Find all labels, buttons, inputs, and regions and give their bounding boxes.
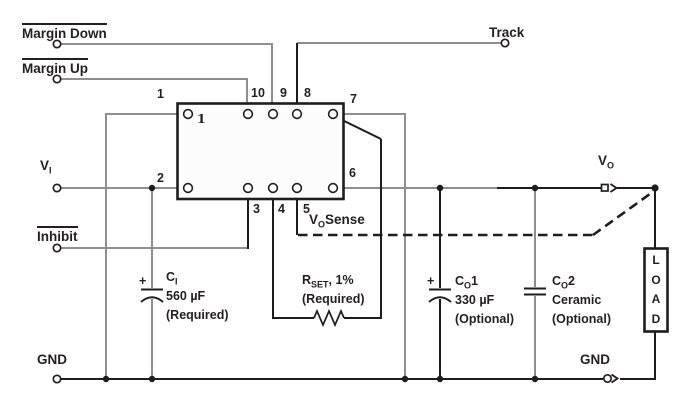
pin2-label: 2 [157, 172, 164, 185]
pin1-circle [184, 110, 193, 119]
pin9-circle [269, 110, 278, 119]
margin-down-label: Margin Down [22, 23, 107, 42]
track-label: Track [489, 25, 524, 41]
gnd-right-terminal [604, 375, 618, 383]
inhibit-label: Inhibit [37, 226, 78, 245]
pin7-label: 7 [350, 93, 357, 106]
pin5-circle [293, 184, 302, 193]
pin8-circle [293, 110, 302, 119]
vo-label: VO [598, 153, 614, 169]
inhibit-wire [61, 199, 248, 249]
pin7-circle [329, 110, 338, 119]
co2-annotation: CO2 Ceramic (Optional) [552, 272, 611, 329]
vi-label: VI [40, 158, 52, 174]
pin3-label: 3 [253, 203, 260, 216]
pin6-label: 6 [349, 167, 356, 180]
pin1-ground-wire [106, 113, 184, 379]
vo-terminal [602, 184, 617, 192]
pin8-label: 8 [304, 87, 311, 100]
pin4-circle [269, 184, 278, 193]
vo-sense-label: VOSense [309, 212, 365, 228]
gnd-left-label: GND [37, 352, 67, 368]
pin10-circle [244, 110, 253, 119]
gnd-right-label: GND [580, 352, 610, 368]
rset-resistor-symbol [314, 311, 344, 325]
margin-up-label: Margin Up [22, 58, 88, 77]
pin7-ground-wire [336, 113, 405, 379]
schematic-canvas: Margin Down Margin Up Track VI Inhibit G… [0, 0, 700, 401]
co2-capacitor-symbol [524, 289, 546, 295]
co1-annotation: CO1 330 µF (Optional) [455, 272, 514, 329]
pin10-label: 10 [251, 87, 265, 100]
pin1-inner-mark: 1 [197, 113, 206, 126]
inhibit-terminal [53, 244, 60, 251]
ci-annotation: CI 560 µF (Required) [166, 268, 229, 325]
schematic-graphics [0, 0, 700, 401]
co1-polarity-plus: + [427, 275, 434, 288]
ci-polarity-plus: + [139, 275, 146, 288]
pin2-circle [184, 184, 193, 193]
pin5-label: 5 [303, 203, 310, 216]
pin6-circle [329, 184, 338, 193]
pin9-label: 9 [280, 87, 287, 100]
rset-annotation: RSET, 1% (Required) [302, 271, 365, 309]
terminals [53, 39, 617, 382]
load-label: L O A D [644, 251, 668, 329]
pin1-label: 1 [157, 88, 164, 101]
margin-down-wire [60, 43, 272, 110]
pin3-circle [244, 184, 253, 193]
gnd-left-terminal [53, 375, 60, 382]
pin4-label: 4 [278, 203, 285, 216]
track-wire [297, 43, 501, 110]
vi-terminal [53, 184, 60, 191]
